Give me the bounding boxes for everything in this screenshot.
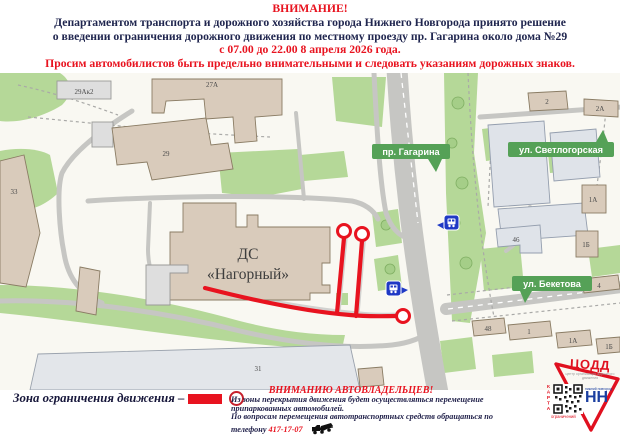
label-2: 2 — [545, 98, 549, 106]
logo-city: НН — [585, 389, 608, 407]
header: ВНИМАНИЕ! Департаментом транспорта и дор… — [0, 2, 620, 71]
label-2a: 2А — [596, 105, 605, 113]
building-tan-br — [358, 367, 384, 387]
street-name-beketova: ул. Бекетова — [523, 279, 582, 289]
legend: Зона ограничения движения – — [13, 391, 244, 406]
notice-phone-prefix: телефону — [231, 425, 266, 434]
label-1a-r: 1А — [589, 196, 598, 204]
label-4: 4 — [597, 282, 601, 290]
header-dates: с 07.00 до 22.00 8 апреля 2026 года. — [0, 43, 620, 57]
logo-qr-bottom-text: ограничений — [551, 414, 576, 419]
logo-org-sub: центр организации дорожного движения — [562, 372, 618, 380]
notice-body-3: По вопросам перемещения автотранспортных… — [231, 413, 511, 422]
legend-label: Зона ограничения движения – — [13, 391, 184, 406]
header-decision-1: Департаментом транспорта и дорожного хоз… — [0, 16, 620, 30]
street-name-svetlogorskaya: ул. Светлогорская — [519, 145, 603, 155]
owners-notice: ВНИМАНИЮ АВТОВЛАДЕЛЬЦЕВ! Из зоны перекры… — [231, 385, 511, 435]
qr-code — [553, 384, 583, 414]
header-decision-2: о введении ограничения дорожного движени… — [0, 30, 620, 44]
building-svet-1 — [488, 121, 550, 207]
tsodd-logo: ЦОДД центр организации дорожного движени… — [538, 352, 620, 439]
label-1: 1 — [527, 328, 531, 336]
label-29: 29 — [163, 150, 171, 158]
header-request: Просим автомобилистов быть предельно вни… — [0, 57, 620, 71]
label-46: 46 — [513, 236, 521, 244]
logo-qr-side-text: КАРТА — [546, 385, 551, 415]
closure-point-2 — [356, 228, 369, 241]
label-1b-r: 1Б — [582, 241, 590, 249]
closure-point-3 — [397, 310, 410, 323]
notice-body-4: телефону 417-17-07 — [231, 422, 511, 435]
tow-truck-icon — [311, 422, 335, 435]
venue-line-2: «Нагорный» — [207, 266, 289, 283]
closure-point-1 — [338, 225, 351, 238]
label-48: 48 — [485, 325, 493, 333]
city-map: 29Ак2 27А 29 33 2 2А 1А 46 1Б 4 48 1 1А … — [0, 73, 620, 390]
building-grey-small — [92, 122, 113, 147]
logo-org-name: ЦОДД — [563, 356, 618, 374]
legend-red-bar — [188, 394, 222, 404]
announcement-poster: ВНИМАНИЕ! Департаментом транспорта и дор… — [0, 0, 620, 439]
header-attention: ВНИМАНИЕ! — [0, 2, 620, 16]
label-1b-b: 1Б — [605, 343, 613, 351]
label-31: 31 — [255, 365, 263, 373]
venue-line-1: ДС — [238, 246, 259, 263]
notice-phone-number: 417-17-07 — [269, 425, 303, 434]
label-1a-b: 1А — [569, 337, 578, 345]
building-tan-small — [76, 267, 100, 315]
label-29ak2: 29Ак2 — [75, 88, 94, 96]
label-33: 33 — [11, 188, 19, 196]
label-27a: 27А — [206, 81, 218, 89]
street-name-gagarina: пр. Гагарина — [382, 147, 440, 157]
